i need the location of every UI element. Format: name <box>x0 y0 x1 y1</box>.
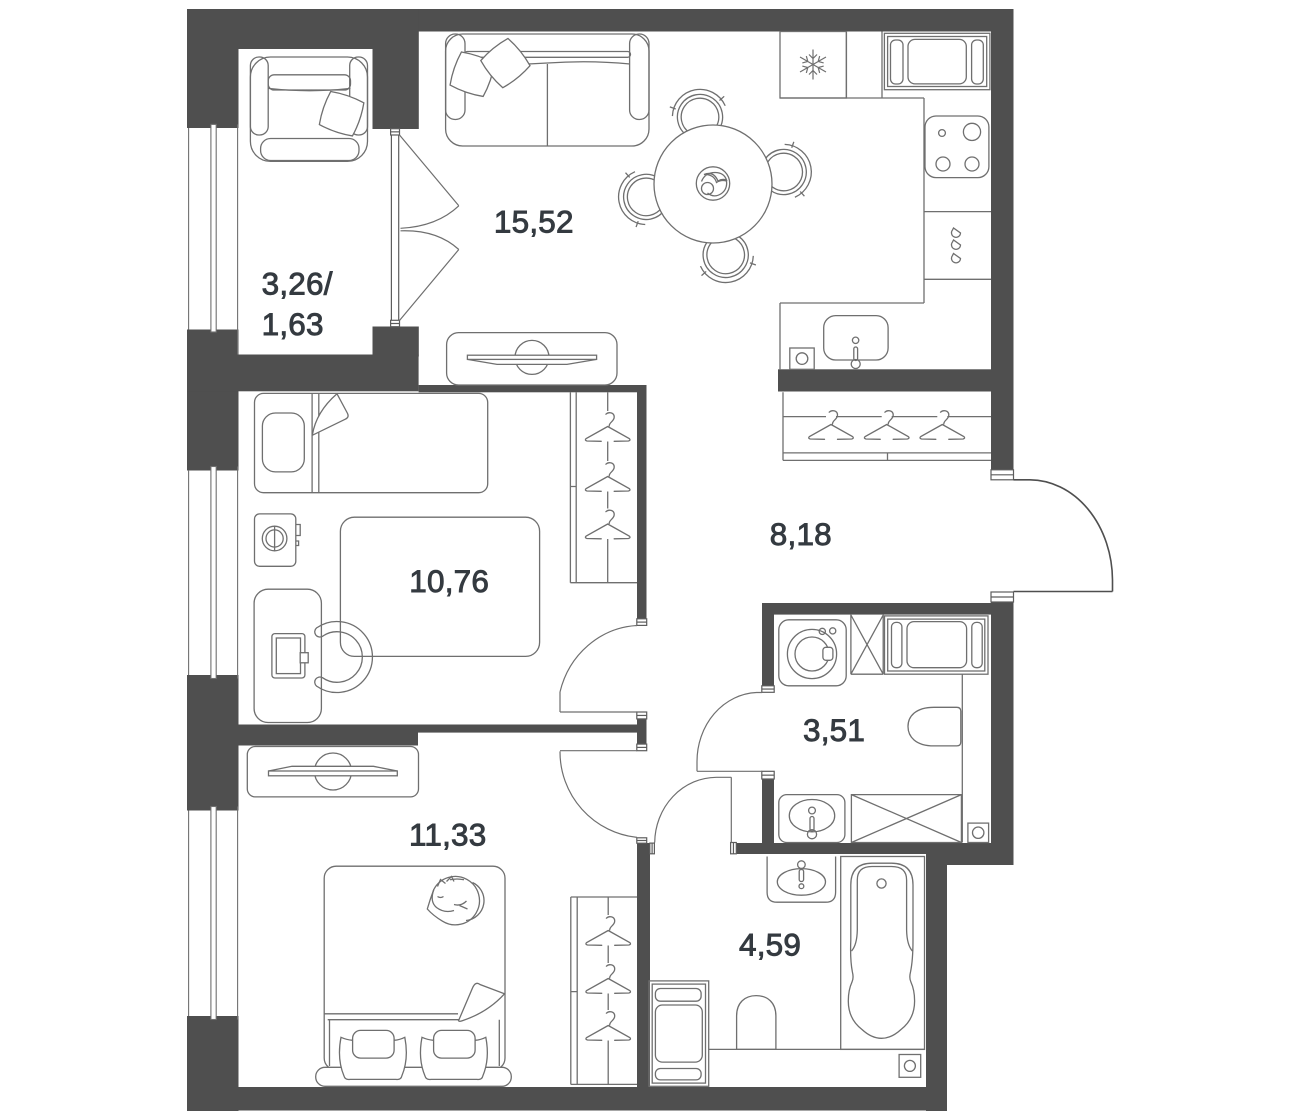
svg-text:4,59: 4,59 <box>739 926 801 962</box>
svg-text:1,63: 1,63 <box>262 306 324 342</box>
svg-text:11,33: 11,33 <box>409 817 487 853</box>
svg-text:3,51: 3,51 <box>803 712 865 748</box>
svg-text:10,76: 10,76 <box>409 563 489 599</box>
svg-text:3,26/: 3,26/ <box>262 266 333 302</box>
svg-text:8,18: 8,18 <box>770 516 832 552</box>
svg-text:15,52: 15,52 <box>494 204 574 240</box>
